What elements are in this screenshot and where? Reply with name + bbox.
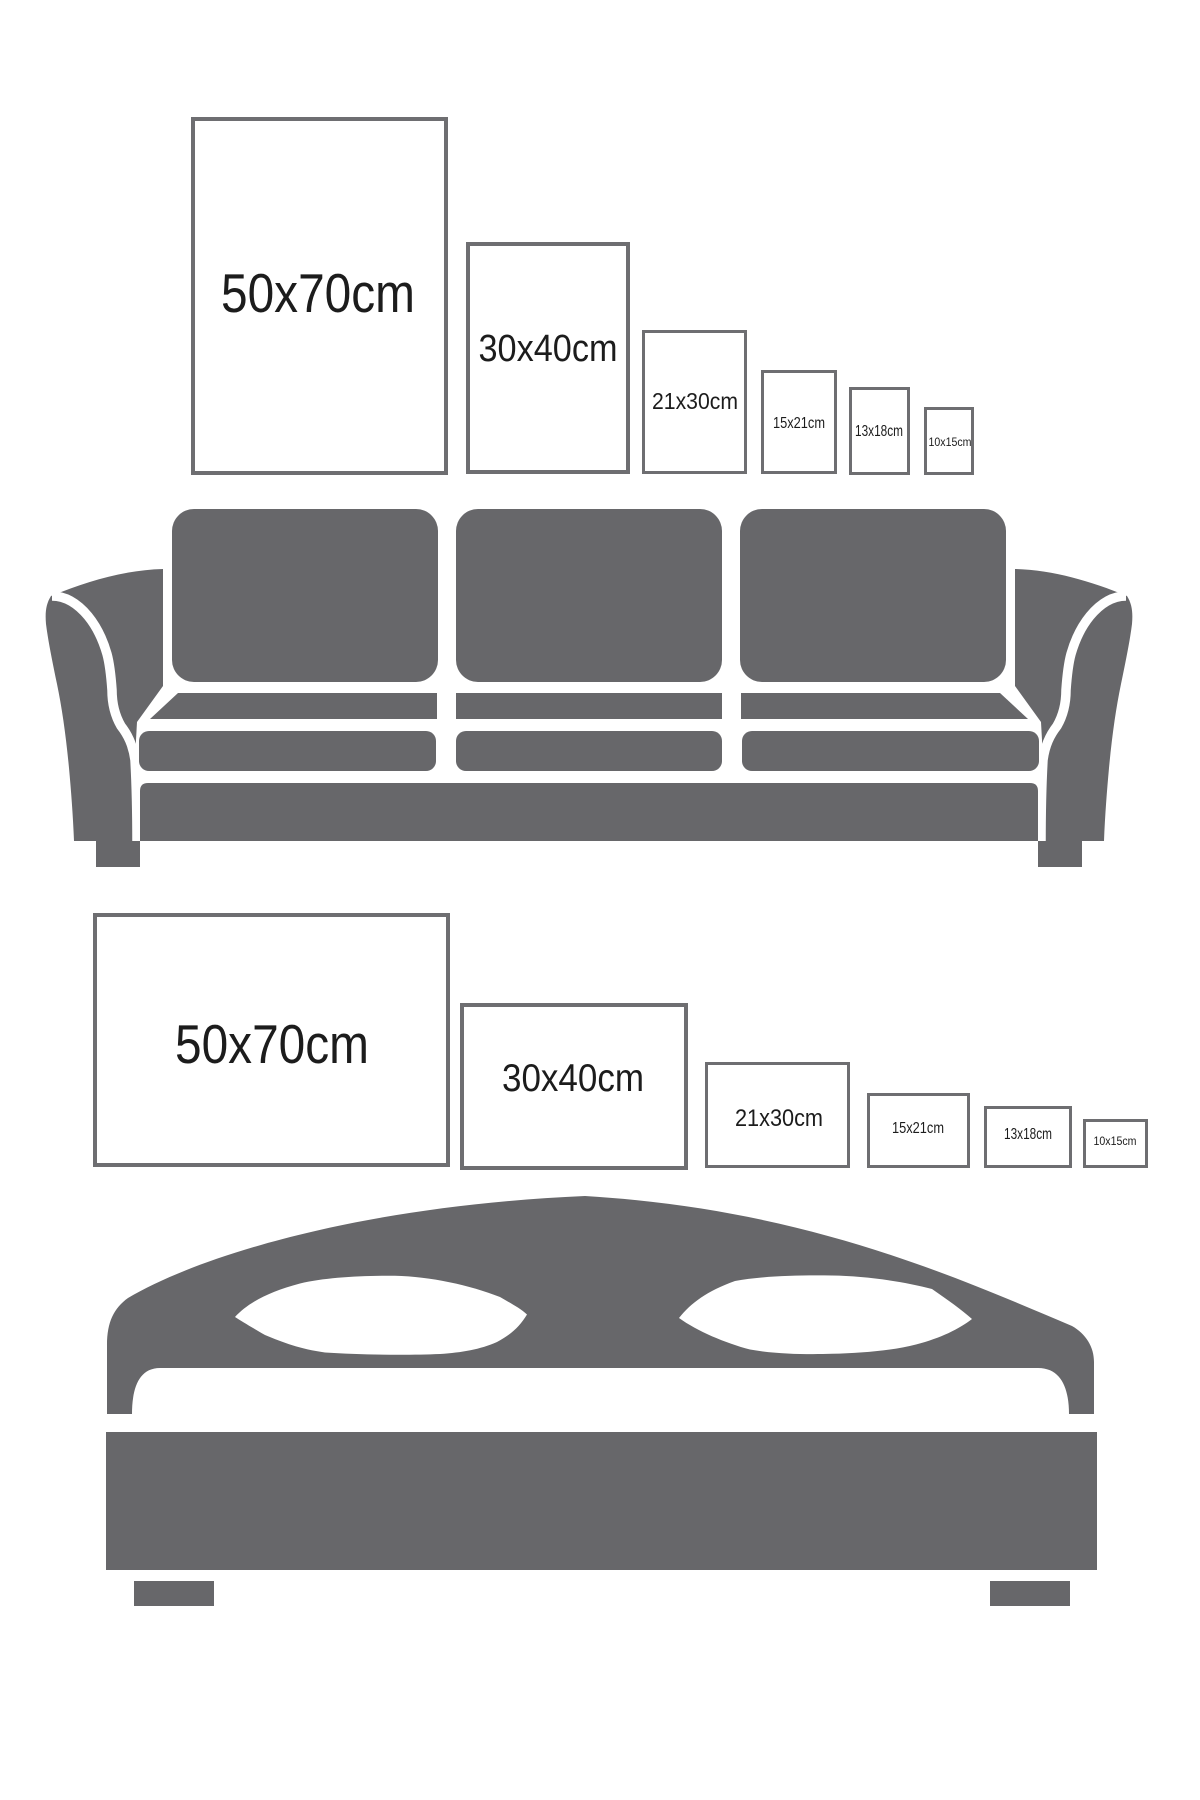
svg-text:13x18cm: 13x18cm (855, 423, 903, 440)
svg-text:50x70cm: 50x70cm (221, 262, 415, 324)
svg-text:10x15cm: 10x15cm (1094, 1134, 1137, 1148)
svg-text:21x30cm: 21x30cm (652, 388, 738, 414)
svg-text:15x21cm: 15x21cm (773, 415, 825, 432)
svg-text:30x40cm: 30x40cm (502, 1057, 644, 1100)
svg-text:13x18cm: 13x18cm (1004, 1126, 1052, 1143)
svg-text:21x30cm: 21x30cm (735, 1105, 823, 1132)
svg-text:50x70cm: 50x70cm (175, 1013, 369, 1075)
svg-text:15x21cm: 15x21cm (892, 1120, 944, 1137)
svg-text:10x15cm: 10x15cm (929, 435, 972, 449)
svg-text:30x40cm: 30x40cm (479, 328, 618, 370)
